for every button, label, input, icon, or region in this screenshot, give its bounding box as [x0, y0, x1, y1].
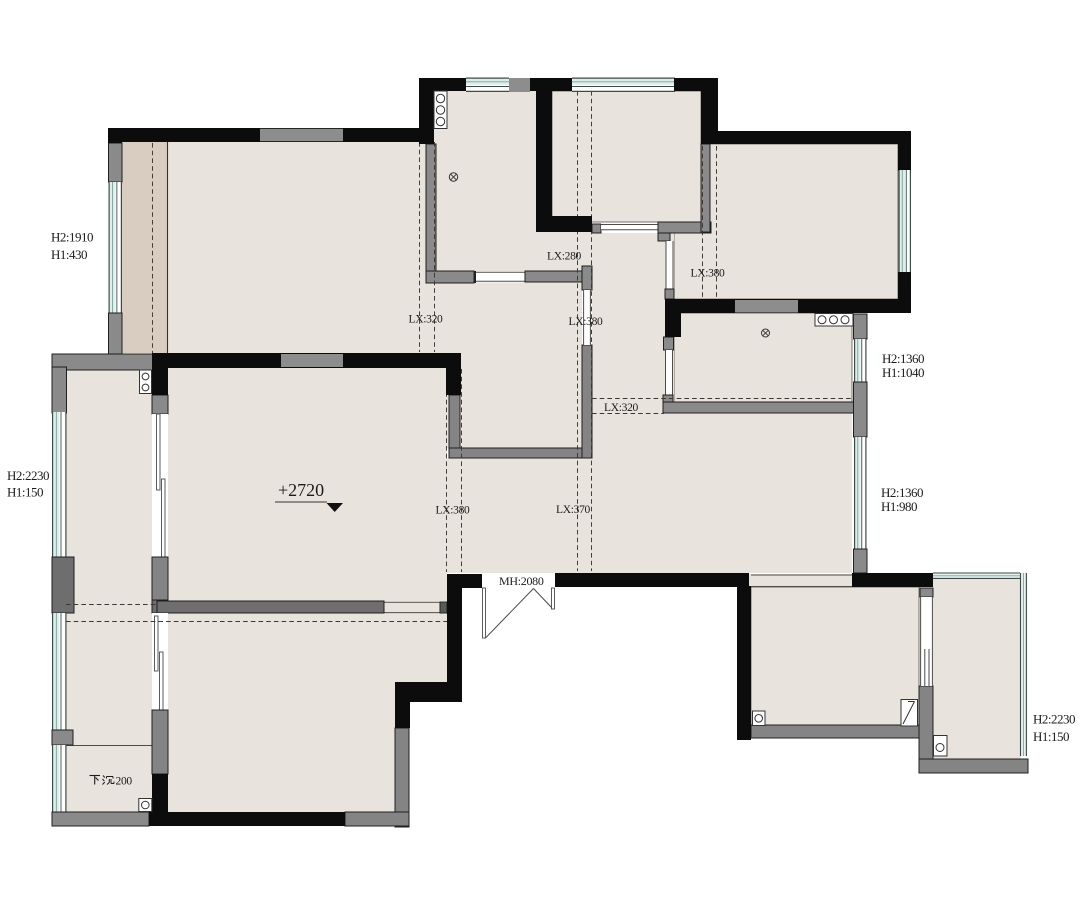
- svg-text:LX:320: LX:320: [409, 314, 444, 326]
- svg-text:LX:370: LX:370: [556, 504, 591, 516]
- svg-text:H2:2230: H2:2230: [7, 468, 49, 483]
- svg-text:LX:280: LX:280: [547, 251, 582, 263]
- svg-text:H1:430: H1:430: [51, 247, 87, 262]
- svg-text:LX:380: LX:380: [569, 316, 604, 328]
- svg-text:MH:2080: MH:2080: [499, 574, 544, 588]
- svg-text:LX:320: LX:320: [604, 402, 639, 414]
- svg-text:+2720: +2720: [278, 480, 324, 500]
- svg-text:H2:2230: H2:2230: [1033, 712, 1075, 727]
- svg-text:H2:1910: H2:1910: [51, 230, 93, 245]
- svg-text:H1:1040: H1:1040: [882, 365, 924, 380]
- svg-text:H1:980: H1:980: [881, 499, 917, 514]
- svg-text:H2:1360: H2:1360: [881, 485, 923, 500]
- svg-text:H1:150: H1:150: [1033, 729, 1069, 744]
- svg-text:LX:380: LX:380: [691, 268, 726, 280]
- svg-text:200: 200: [116, 776, 133, 788]
- svg-text:H2:1360: H2:1360: [882, 351, 924, 366]
- svg-text:H1:150: H1:150: [7, 485, 43, 500]
- svg-text:LX:380: LX:380: [436, 505, 471, 517]
